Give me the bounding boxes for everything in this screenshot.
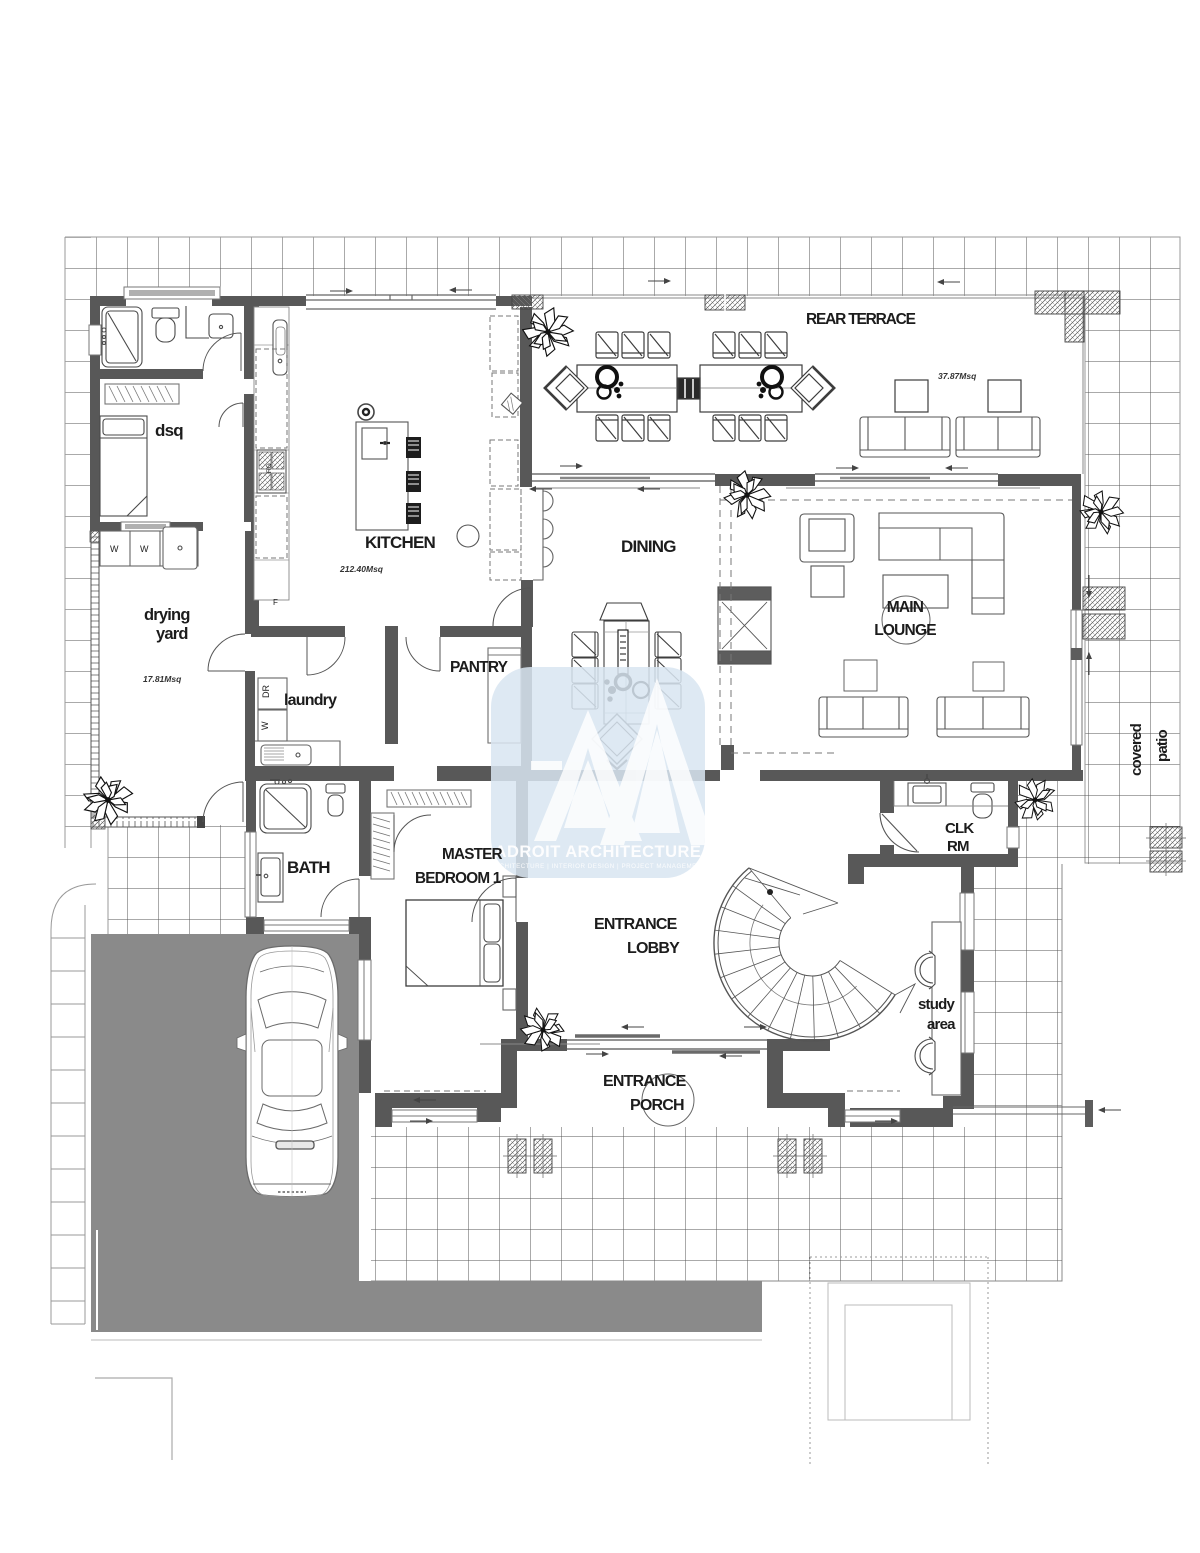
svg-text:MASTER: MASTER — [442, 846, 503, 863]
svg-text:W: W — [260, 721, 270, 730]
svg-text:BEDROOM 1: BEDROOM 1 — [415, 870, 502, 887]
svg-text:37.87Msq: 37.87Msq — [938, 371, 977, 381]
svg-text:KITCHEN: KITCHEN — [365, 533, 435, 552]
svg-text:LOBBY: LOBBY — [627, 940, 680, 957]
svg-text:17.81Msq: 17.81Msq — [143, 674, 182, 684]
svg-text:dsq: dsq — [155, 421, 183, 440]
svg-text:PORCH: PORCH — [630, 1097, 684, 1114]
svg-text:W: W — [140, 544, 149, 554]
svg-text:CLK: CLK — [945, 820, 974, 837]
svg-text:covered: covered — [1128, 723, 1145, 776]
svg-text:REAR TERRACE: REAR TERRACE — [806, 311, 916, 328]
svg-text:ARCHITECTURE | INTERIOR DESIGN: ARCHITECTURE | INTERIOR DESIGN | PROJECT… — [490, 863, 706, 870]
svg-text:study: study — [918, 996, 955, 1013]
svg-text:W: W — [110, 544, 119, 554]
svg-text:BATH: BATH — [287, 858, 330, 877]
svg-text:ENTRANCE: ENTRANCE — [603, 1073, 687, 1090]
svg-text:ENTRANCE: ENTRANCE — [594, 916, 678, 933]
svg-text:area: area — [927, 1016, 956, 1033]
svg-text:PANTRY: PANTRY — [450, 659, 509, 676]
svg-text:F: F — [273, 598, 278, 607]
svg-text:DR: DR — [261, 685, 271, 698]
svg-text:laundry: laundry — [284, 692, 337, 709]
svg-text:drying: drying — [144, 606, 190, 624]
svg-text:RG: RG — [266, 463, 273, 473]
svg-text:patio: patio — [1154, 730, 1171, 762]
svg-text:212.40Msq: 212.40Msq — [339, 564, 384, 574]
svg-text:DINING: DINING — [621, 537, 676, 556]
svg-text:LOUNGE: LOUNGE — [874, 622, 936, 639]
svg-text:RM: RM — [947, 838, 969, 855]
svg-text:MAIN: MAIN — [887, 599, 924, 616]
svg-text:ADROIT ARCHITECTURE: ADROIT ARCHITECTURE — [495, 843, 702, 861]
svg-text:yard: yard — [156, 625, 188, 643]
